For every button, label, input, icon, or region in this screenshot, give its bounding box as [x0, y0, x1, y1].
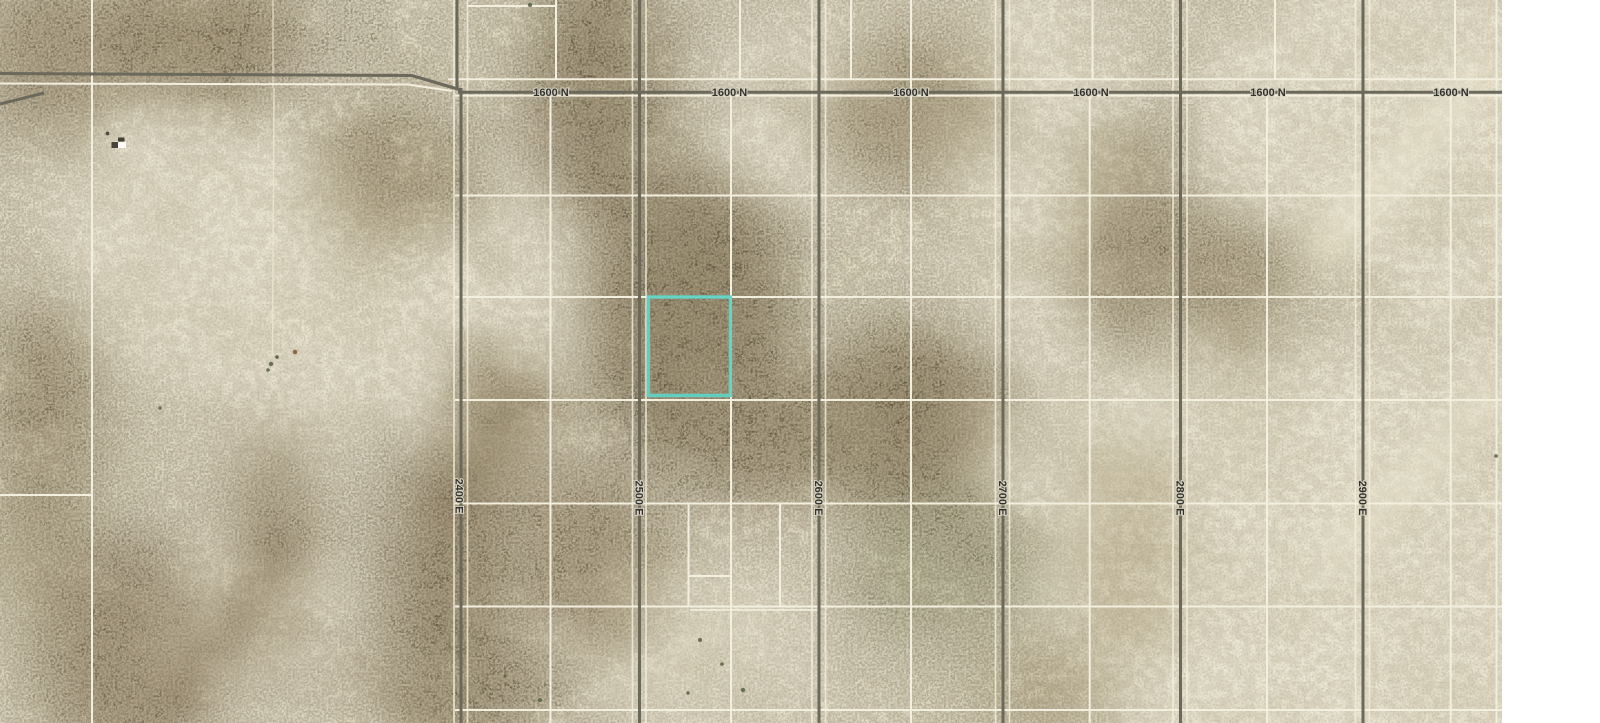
svg-text:1600 N: 1600 N — [533, 87, 569, 99]
svg-text:2900 E: 2900 E — [1356, 481, 1368, 516]
svg-text:1600 N: 1600 N — [712, 87, 748, 99]
svg-text:1600 N: 1600 N — [893, 87, 929, 99]
svg-text:1600 N: 1600 N — [1433, 87, 1469, 99]
svg-text:2400 E: 2400 E — [453, 479, 465, 514]
svg-text:1600 N: 1600 N — [1073, 87, 1109, 99]
svg-text:1600 N: 1600 N — [1250, 87, 1286, 99]
svg-text:2700 E: 2700 E — [996, 481, 1008, 516]
svg-text:2500 E: 2500 E — [633, 481, 645, 516]
svg-text:2800 E: 2800 E — [1174, 481, 1186, 516]
svg-text:2600 E: 2600 E — [812, 481, 824, 516]
